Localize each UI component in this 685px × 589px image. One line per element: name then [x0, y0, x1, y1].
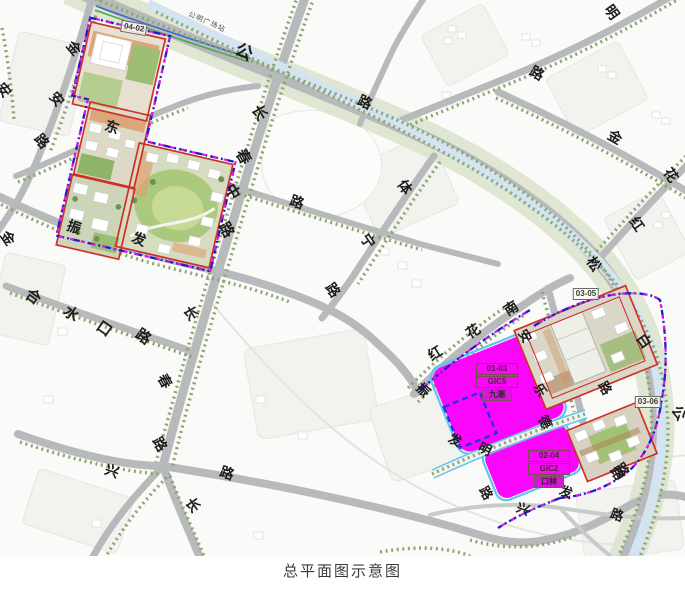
map-graphics	[0, 0, 685, 556]
site-plan-map: 金安安路东振发金长春中路公路体宁路路合水口路长春路兴路长明路金花红松白路公红花南…	[0, 0, 685, 556]
article-figure: 金安安路东振发金长春中路公路体宁路路合水口路长春路兴路长明路金花红松白路公红花南…	[0, 0, 685, 589]
map-caption: 总平面图示意图	[0, 560, 685, 581]
